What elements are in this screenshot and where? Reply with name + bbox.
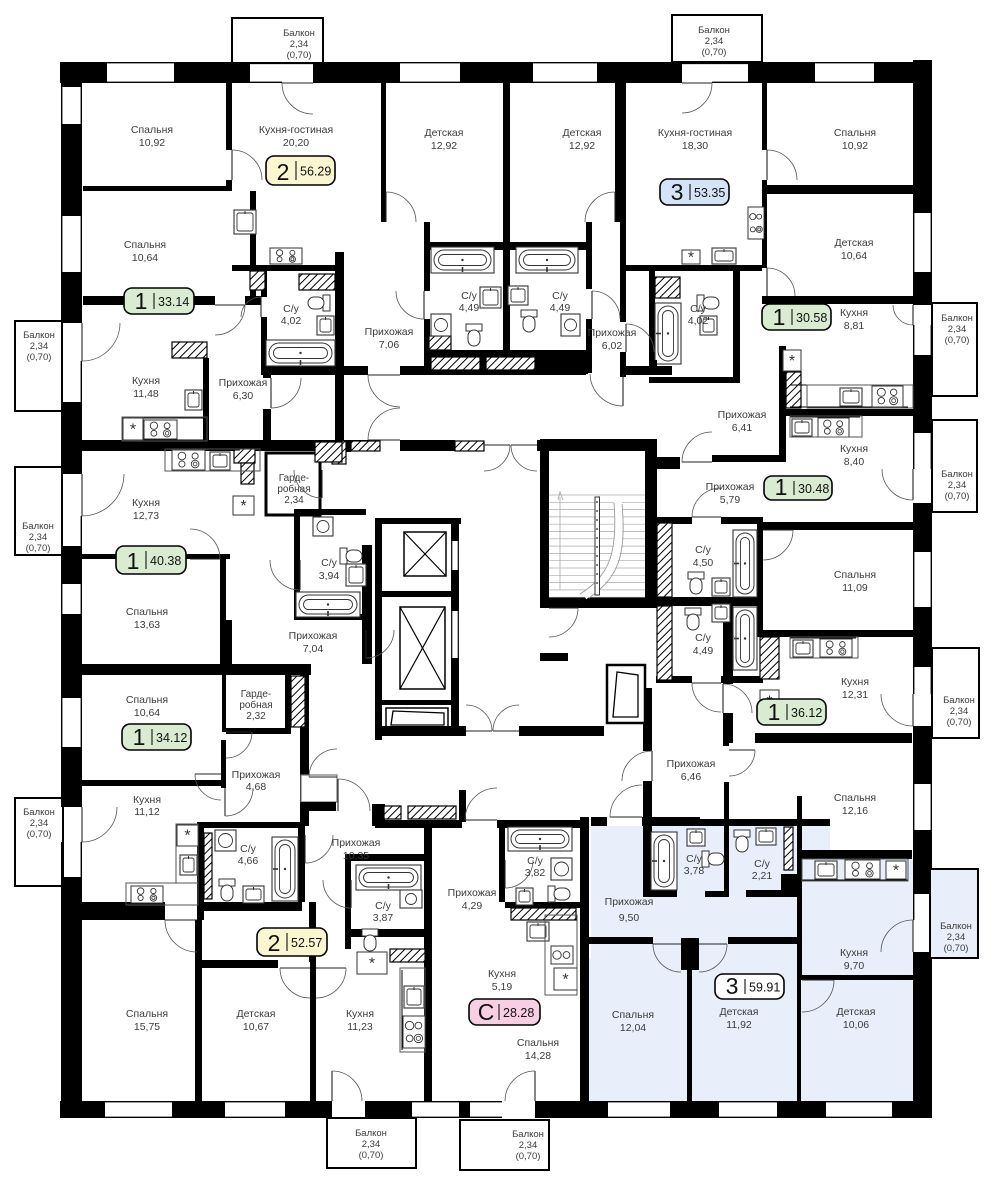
svg-text:4,49: 4,49 bbox=[459, 302, 480, 314]
svg-text:Прихожая: Прихожая bbox=[718, 409, 767, 421]
svg-text:(0,70): (0,70) bbox=[27, 829, 52, 840]
svg-text:33.14: 33.14 bbox=[158, 295, 189, 309]
svg-text:2,34: 2,34 bbox=[950, 706, 969, 717]
svg-text:Прихожая: Прихожая bbox=[219, 377, 268, 389]
svg-text:4,68: 4,68 bbox=[246, 781, 267, 793]
svg-text:2,34: 2,34 bbox=[29, 532, 48, 543]
svg-text:Детская: Детская bbox=[563, 127, 602, 139]
svg-text:Кухня: Кухня bbox=[132, 497, 160, 509]
svg-text:8,81: 8,81 bbox=[844, 320, 865, 332]
svg-text:12,92: 12,92 bbox=[431, 140, 457, 152]
svg-text:Спальня: Спальня bbox=[131, 124, 173, 136]
svg-text:6,46: 6,46 bbox=[681, 771, 702, 783]
svg-text:С/у: С/у bbox=[686, 853, 703, 865]
svg-text:(0,70): (0,70) bbox=[516, 1151, 541, 1162]
svg-text:Спальня: Спальня bbox=[834, 127, 876, 139]
svg-text:10,06: 10,06 bbox=[843, 1019, 869, 1031]
svg-text:Детская: Детская bbox=[837, 1006, 876, 1018]
svg-text:*: * bbox=[789, 353, 795, 370]
svg-text:*: * bbox=[562, 972, 568, 989]
svg-text:7,06: 7,06 bbox=[379, 339, 400, 351]
svg-text:12,04: 12,04 bbox=[620, 1022, 646, 1034]
svg-text:(0,70): (0,70) bbox=[945, 491, 970, 502]
svg-text:Кухня: Кухня bbox=[840, 443, 868, 455]
svg-text:2: 2 bbox=[268, 930, 281, 956]
svg-text:28.28: 28.28 bbox=[503, 1006, 534, 1020]
svg-text:(0,70): (0,70) bbox=[702, 47, 727, 58]
svg-text:Прихожая: Прихожая bbox=[289, 630, 338, 642]
svg-text:1: 1 bbox=[135, 288, 148, 314]
svg-text:С/у: С/у bbox=[552, 290, 569, 302]
svg-text:14,28: 14,28 bbox=[525, 1050, 551, 1062]
svg-text:Балкон: Балкон bbox=[22, 521, 54, 532]
svg-text:Спальня: Спальня bbox=[126, 606, 168, 618]
svg-text:2,34: 2,34 bbox=[948, 480, 967, 491]
svg-text:Прихожая: Прихожая bbox=[448, 887, 497, 899]
svg-text:1: 1 bbox=[768, 699, 781, 725]
svg-text:4,66: 4,66 bbox=[238, 855, 259, 867]
svg-text:робная: робная bbox=[277, 483, 310, 495]
svg-text:С/у: С/у bbox=[283, 303, 300, 315]
svg-text:1: 1 bbox=[127, 548, 140, 574]
svg-text:20,20: 20,20 bbox=[283, 137, 309, 149]
svg-text:3: 3 bbox=[726, 973, 739, 999]
svg-text:*: * bbox=[688, 250, 694, 267]
svg-text:12,92: 12,92 bbox=[569, 140, 595, 152]
svg-text:4,29: 4,29 bbox=[462, 900, 483, 912]
svg-text:11,12: 11,12 bbox=[134, 806, 160, 818]
svg-text:10,64: 10,64 bbox=[841, 250, 867, 262]
svg-text:36.12: 36.12 bbox=[791, 706, 822, 720]
svg-text:Спальня: Спальня bbox=[124, 239, 166, 251]
svg-text:С: С bbox=[478, 999, 495, 1025]
svg-text:(0,70): (0,70) bbox=[287, 50, 312, 61]
svg-text:Кухня: Кухня bbox=[840, 947, 868, 959]
svg-text:18,30: 18,30 bbox=[682, 140, 708, 152]
svg-text:53.35: 53.35 bbox=[694, 186, 725, 200]
svg-text:2,34: 2,34 bbox=[362, 1139, 381, 1150]
svg-text:8,40: 8,40 bbox=[844, 456, 865, 468]
svg-text:Кухня: Кухня bbox=[133, 794, 161, 806]
svg-text:С/у: С/у bbox=[695, 632, 712, 644]
svg-text:(0,70): (0,70) bbox=[947, 717, 972, 728]
svg-text:*: * bbox=[184, 828, 190, 845]
svg-text:4,49: 4,49 bbox=[693, 645, 714, 657]
svg-text:робная: робная bbox=[239, 699, 272, 711]
svg-text:Спальня: Спальня bbox=[517, 1037, 559, 1049]
svg-text:С/у: С/у bbox=[240, 843, 257, 855]
svg-text:12,16: 12,16 bbox=[842, 805, 868, 817]
svg-text:Кухня: Кухня bbox=[840, 307, 868, 319]
svg-text:*: * bbox=[893, 863, 899, 880]
svg-text:4,50: 4,50 bbox=[693, 557, 714, 569]
svg-text:Кухня-гостиная: Кухня-гостиная bbox=[658, 127, 732, 139]
svg-text:13,63: 13,63 bbox=[134, 619, 160, 631]
svg-text:2,34: 2,34 bbox=[30, 818, 49, 829]
svg-text:*: * bbox=[369, 956, 375, 973]
svg-text:2,34: 2,34 bbox=[705, 36, 724, 47]
svg-text:Балкон: Балкон bbox=[940, 921, 972, 932]
svg-text:Кухня-гостиная: Кухня-гостиная bbox=[259, 124, 333, 136]
svg-text:Кухня: Кухня bbox=[841, 676, 869, 688]
svg-text:2,21: 2,21 bbox=[752, 870, 773, 882]
svg-text:52.57: 52.57 bbox=[291, 936, 322, 950]
svg-text:40.38: 40.38 bbox=[150, 554, 181, 568]
svg-text:11,23: 11,23 bbox=[347, 1021, 373, 1033]
svg-text:Прихожая: Прихожая bbox=[588, 327, 637, 339]
svg-text:34.12: 34.12 bbox=[156, 731, 187, 745]
svg-text:12,31: 12,31 bbox=[842, 689, 868, 701]
svg-text:6,41: 6,41 bbox=[732, 422, 753, 434]
svg-text:С/у: С/у bbox=[754, 858, 771, 870]
svg-text:Прихожая: Прихожая bbox=[332, 837, 381, 849]
svg-text:4,49: 4,49 bbox=[550, 302, 571, 314]
svg-text:Прихожая: Прихожая bbox=[232, 769, 281, 781]
svg-text:Спальня: Спальня bbox=[612, 1009, 654, 1021]
svg-text:3,87: 3,87 bbox=[373, 912, 394, 924]
svg-text:С/у: С/у bbox=[527, 855, 544, 867]
svg-text:11,92: 11,92 bbox=[726, 1019, 752, 1031]
svg-text:4,02: 4,02 bbox=[281, 315, 302, 327]
svg-text:7,04: 7,04 bbox=[303, 643, 324, 655]
svg-text:10,92: 10,92 bbox=[842, 140, 868, 152]
svg-text:6,02: 6,02 bbox=[602, 340, 623, 352]
svg-text:(0,70): (0,70) bbox=[359, 1150, 384, 1161]
svg-text:12,73: 12,73 bbox=[133, 510, 159, 522]
svg-text:Прихожая: Прихожая bbox=[706, 481, 755, 493]
svg-text:30.58: 30.58 bbox=[796, 311, 827, 325]
svg-text:Спальня: Спальня bbox=[126, 1008, 168, 1020]
svg-text:Балкон: Балкон bbox=[698, 25, 730, 36]
svg-text:Балкон: Балкон bbox=[941, 469, 973, 480]
svg-text:Балкон: Балкон bbox=[283, 28, 315, 39]
svg-text:2,34: 2,34 bbox=[284, 495, 304, 506]
svg-text:3,82: 3,82 bbox=[525, 867, 546, 879]
svg-text:5,79: 5,79 bbox=[720, 494, 741, 506]
svg-text:6,30: 6,30 bbox=[233, 390, 254, 402]
svg-text:Балкон: Балкон bbox=[355, 1128, 387, 1139]
svg-text:1: 1 bbox=[775, 474, 788, 500]
svg-text:2,34: 2,34 bbox=[30, 341, 49, 352]
svg-text:Балкон: Балкон bbox=[943, 695, 975, 706]
svg-text:Спальня: Спальня bbox=[834, 792, 876, 804]
svg-text:С/у: С/у bbox=[461, 290, 478, 302]
svg-text:10,64: 10,64 bbox=[134, 707, 160, 719]
svg-text:11,09: 11,09 bbox=[842, 582, 868, 594]
svg-text:(0,70): (0,70) bbox=[26, 543, 51, 554]
svg-text:Детская: Детская bbox=[835, 237, 874, 249]
svg-text:(0,70): (0,70) bbox=[945, 335, 970, 346]
svg-text:2,32: 2,32 bbox=[246, 711, 266, 722]
svg-text:5,19: 5,19 bbox=[492, 981, 513, 993]
svg-text:2: 2 bbox=[277, 159, 290, 185]
svg-text:Спальня: Спальня bbox=[126, 694, 168, 706]
svg-text:Балкон: Балкон bbox=[941, 313, 973, 324]
svg-text:Детская: Детская bbox=[237, 1008, 276, 1020]
svg-text:10,64: 10,64 bbox=[132, 252, 158, 264]
svg-text:Балкон: Балкон bbox=[23, 330, 55, 341]
svg-text:10,92: 10,92 bbox=[139, 137, 165, 149]
svg-text:(0,70): (0,70) bbox=[27, 352, 52, 363]
svg-text:4,02: 4,02 bbox=[688, 315, 709, 327]
svg-text:*: * bbox=[240, 498, 246, 515]
svg-text:1: 1 bbox=[773, 304, 786, 330]
svg-text:Балкон: Балкон bbox=[23, 807, 55, 818]
svg-text:Прихожая: Прихожая bbox=[365, 326, 414, 338]
svg-text:С/у: С/у bbox=[321, 557, 338, 569]
svg-text:Спальня: Спальня bbox=[834, 569, 876, 581]
svg-text:(0,70): (0,70) bbox=[944, 943, 969, 954]
svg-text:Кухня: Кухня bbox=[346, 1008, 374, 1020]
svg-text:11,48: 11,48 bbox=[133, 388, 159, 400]
svg-text:С/у: С/у bbox=[690, 303, 707, 315]
svg-text:Кухня: Кухня bbox=[132, 375, 160, 387]
svg-text:30.48: 30.48 bbox=[798, 482, 829, 496]
svg-text:3: 3 bbox=[671, 179, 684, 205]
svg-text:Прихожая: Прихожая bbox=[605, 896, 654, 908]
svg-text:С/у: С/у bbox=[695, 544, 712, 556]
svg-text:2,34: 2,34 bbox=[947, 932, 966, 943]
svg-text:9,70: 9,70 bbox=[844, 960, 865, 972]
svg-text:3,94: 3,94 bbox=[319, 570, 340, 582]
svg-text:Гарде-: Гарде- bbox=[279, 473, 309, 484]
svg-text:*: * bbox=[130, 422, 136, 439]
svg-text:10,35: 10,35 bbox=[343, 850, 369, 862]
svg-text:1: 1 bbox=[133, 724, 146, 750]
svg-text:2,34: 2,34 bbox=[519, 1140, 538, 1151]
svg-text:2,34: 2,34 bbox=[948, 324, 967, 335]
svg-text:10,67: 10,67 bbox=[243, 1021, 269, 1033]
svg-text:Детская: Детская bbox=[720, 1006, 759, 1018]
svg-text:15,75: 15,75 bbox=[134, 1021, 160, 1033]
svg-text:Балкон: Балкон bbox=[512, 1129, 544, 1140]
svg-text:Гарде-: Гарде- bbox=[241, 689, 271, 700]
svg-text:Детская: Детская bbox=[425, 127, 464, 139]
svg-text:9,50: 9,50 bbox=[619, 912, 640, 924]
svg-text:2,34: 2,34 bbox=[290, 39, 309, 50]
svg-text:59.91: 59.91 bbox=[749, 980, 780, 994]
svg-text:Прихожая: Прихожая bbox=[667, 758, 716, 770]
svg-text:Кухня: Кухня bbox=[488, 968, 516, 980]
svg-text:С/у: С/у bbox=[375, 900, 392, 912]
svg-text:3,78: 3,78 bbox=[684, 865, 705, 877]
svg-text:56.29: 56.29 bbox=[300, 164, 331, 178]
